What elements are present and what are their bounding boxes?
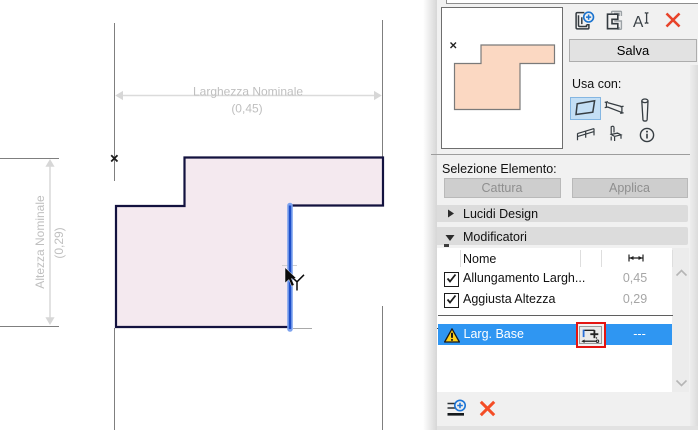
svg-text:(0,29): (0,29)	[52, 227, 66, 258]
svg-text:Larghezza Nominale: Larghezza Nominale	[193, 85, 303, 99]
svg-text:A: A	[633, 14, 644, 30]
svg-text:Altezza Nominale: Altezza Nominale	[33, 195, 47, 289]
svg-text:(0,45): (0,45)	[231, 102, 262, 116]
